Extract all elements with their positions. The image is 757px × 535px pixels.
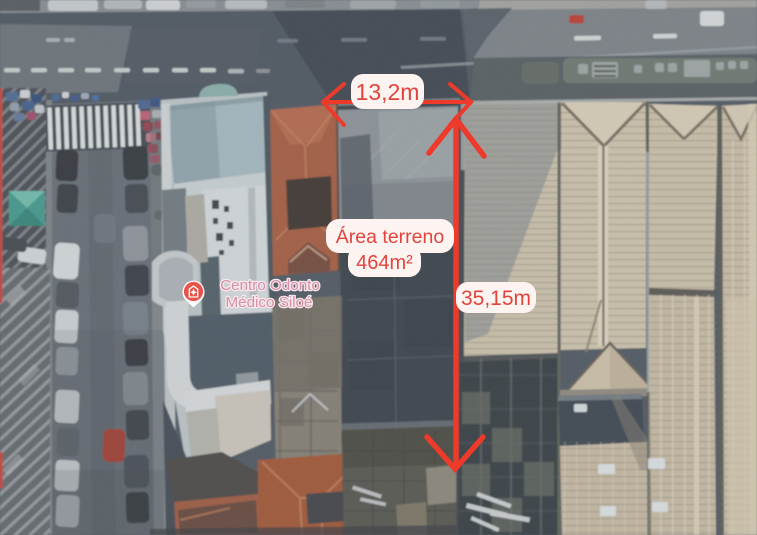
svg-text:13,2m: 13,2m [356,79,420,105]
svg-text:35,15m: 35,15m [461,287,531,310]
svg-text:Centro Odonto: Centro Odonto [220,277,320,294]
svg-text:Área terreno: Área terreno [336,225,445,248]
svg-text:464m²: 464m² [356,252,413,274]
svg-text:Médico Siloé: Médico Siloé [226,294,313,311]
